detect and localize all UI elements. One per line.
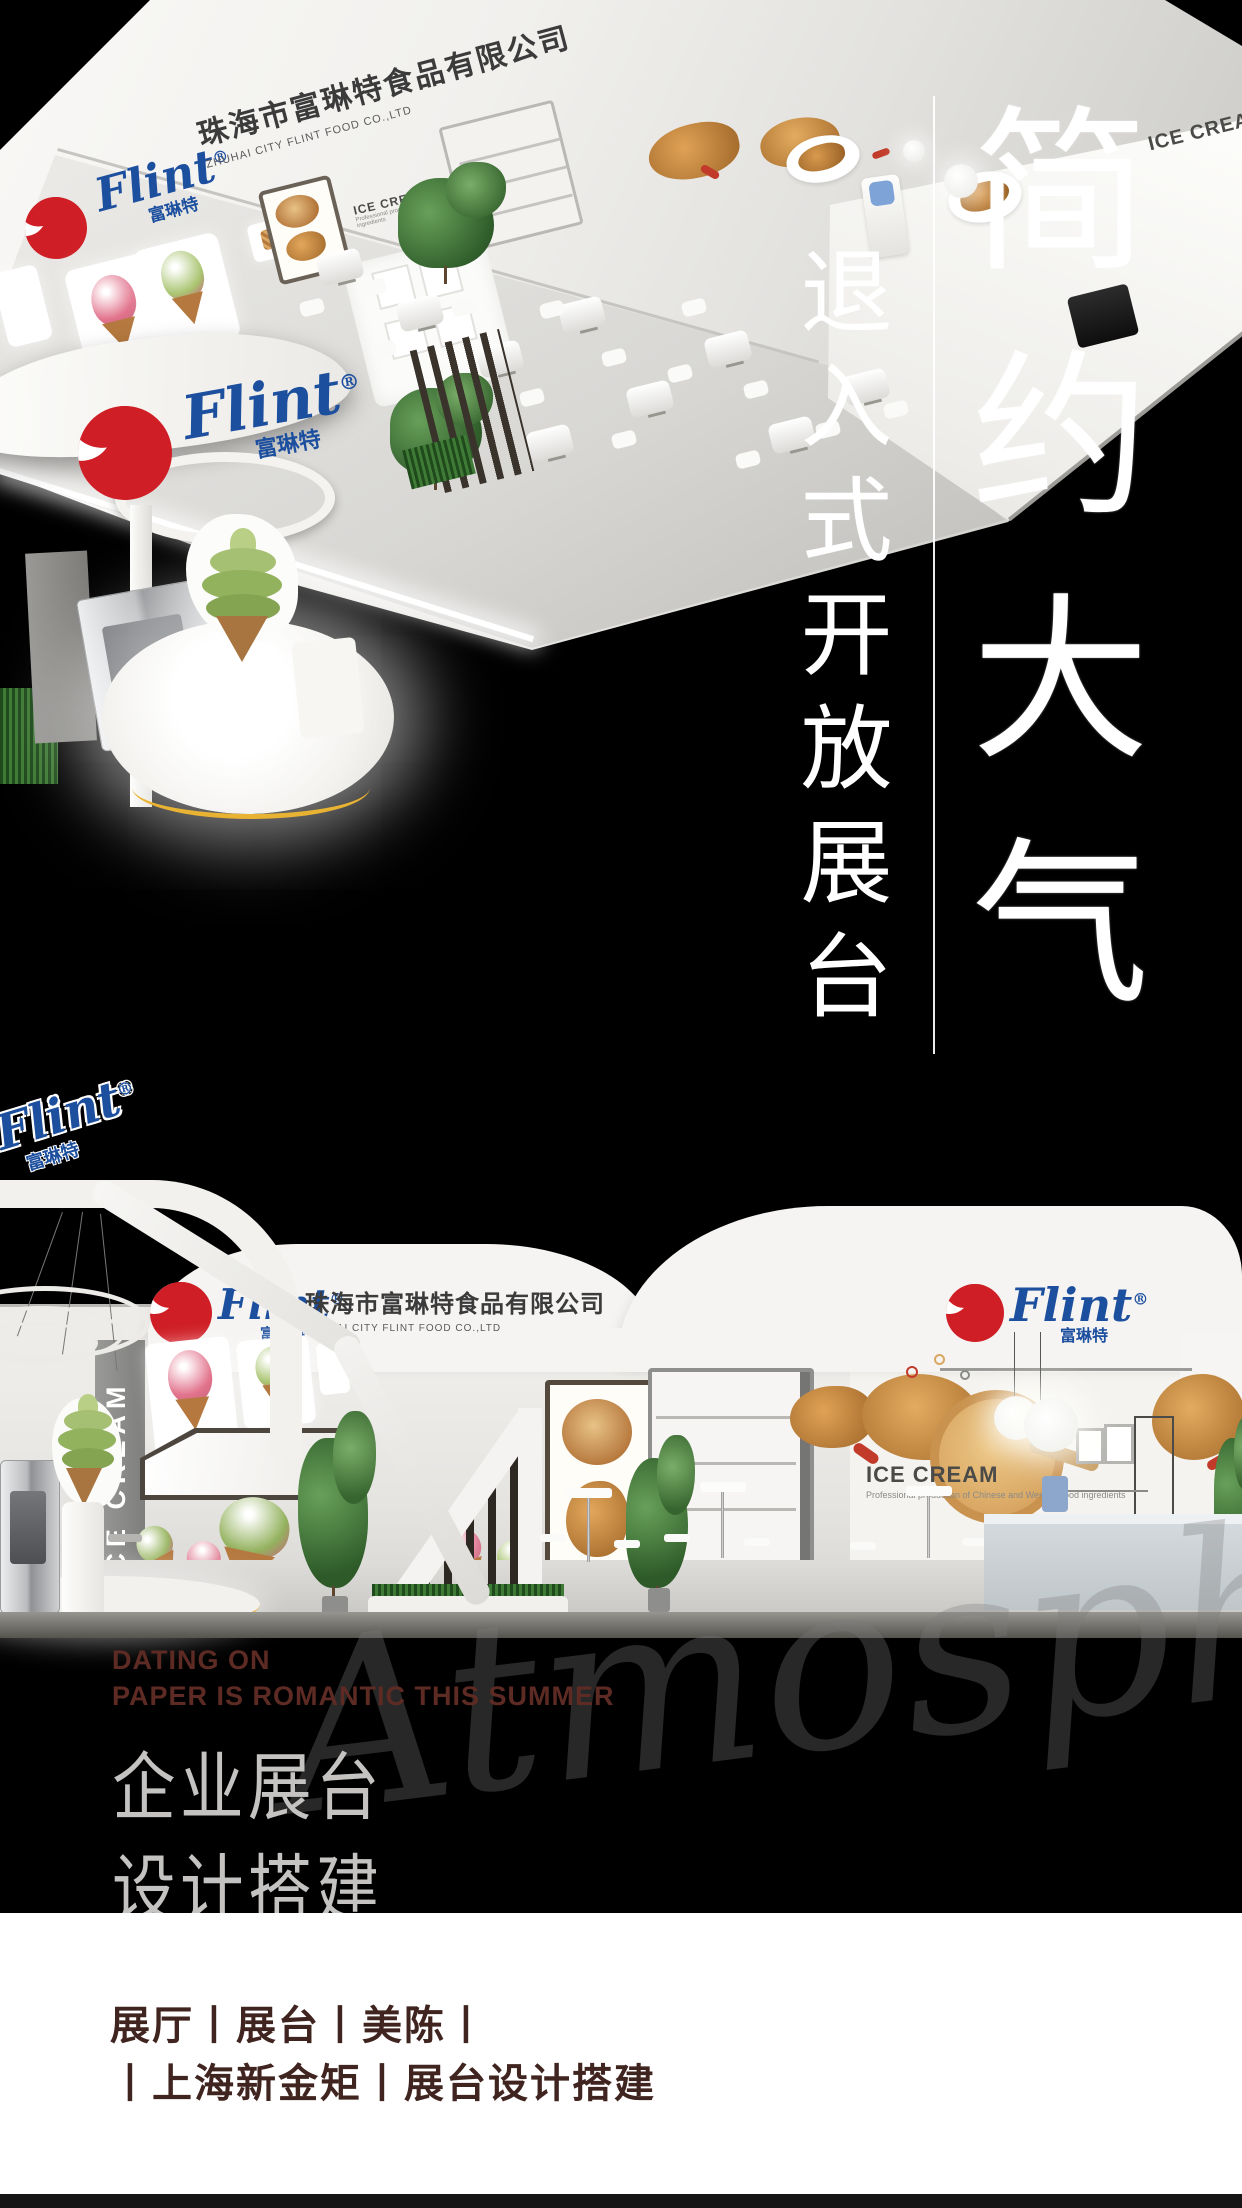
bar-table [566,1488,612,1498]
bottom-edge-strip [0,2194,1242,2208]
potted-plant [298,1438,368,1588]
caption-dating-line2: PAPER IS ROMANTIC THIS SUMMER [112,1681,615,1712]
sculpture-stand [62,1502,104,1614]
ice-cream-machine [0,1460,60,1614]
ice-cream-title: ICE CREAM [866,1462,1126,1488]
bar-stool [614,1540,640,1548]
tower-logo: Flint® 富琳特 [0,1070,149,1179]
waffle-cone [66,1468,102,1506]
confetti-dot [934,1354,945,1365]
flint-icon [946,1284,1004,1342]
flint-logo: Flint® 富琳特 [1010,1282,1148,1345]
poster: Flint® 富琳特 珠海市富琳特食品有限公司 ZHUHAI CITY FLIN… [0,0,1242,2208]
company-name-block: 珠海市富琳特食品有限公司 ZHUHAI CITY FLINT FOOD CO.,… [305,1284,605,1334]
fascia-trim-line [940,1368,1192,1371]
picture-frame [1076,1428,1104,1464]
caption-cn-line1: 企业展台 [112,1728,384,1835]
dish-photo [562,1399,632,1465]
registered-mark: ® [1132,1290,1148,1309]
flint-script: Flint® [1010,1278,1148,1332]
footer: 展厅丨展台丨美陈丨 丨上海新金矩丨展台设计搭建 [0,1913,1242,2208]
ice-cream-wall-heading: ICE CREAM Professional production of Chi… [866,1462,1126,1500]
company-name-cn: 珠海市富琳特食品有限公司 [305,1284,605,1319]
pendant-lamp [1024,1398,1078,1452]
footer-line-1: 展厅丨展台丨美陈丨 [110,1993,488,2051]
shelf-line [656,1416,796,1419]
bar-table [906,1486,952,1496]
confetti-dot [906,1366,918,1378]
bar-table [700,1482,746,1492]
caption-dating-line1: DATING ON [112,1645,271,1676]
bar-stool [540,1534,566,1542]
bar-stool [664,1534,690,1542]
table-pole [587,1498,590,1562]
bar-stool-tall [108,1534,142,1542]
picture-frame [1104,1424,1134,1464]
confetti-dot [960,1370,970,1380]
footer-line-2: 丨上海新金矩丨展台设计搭建 [110,2051,656,2109]
